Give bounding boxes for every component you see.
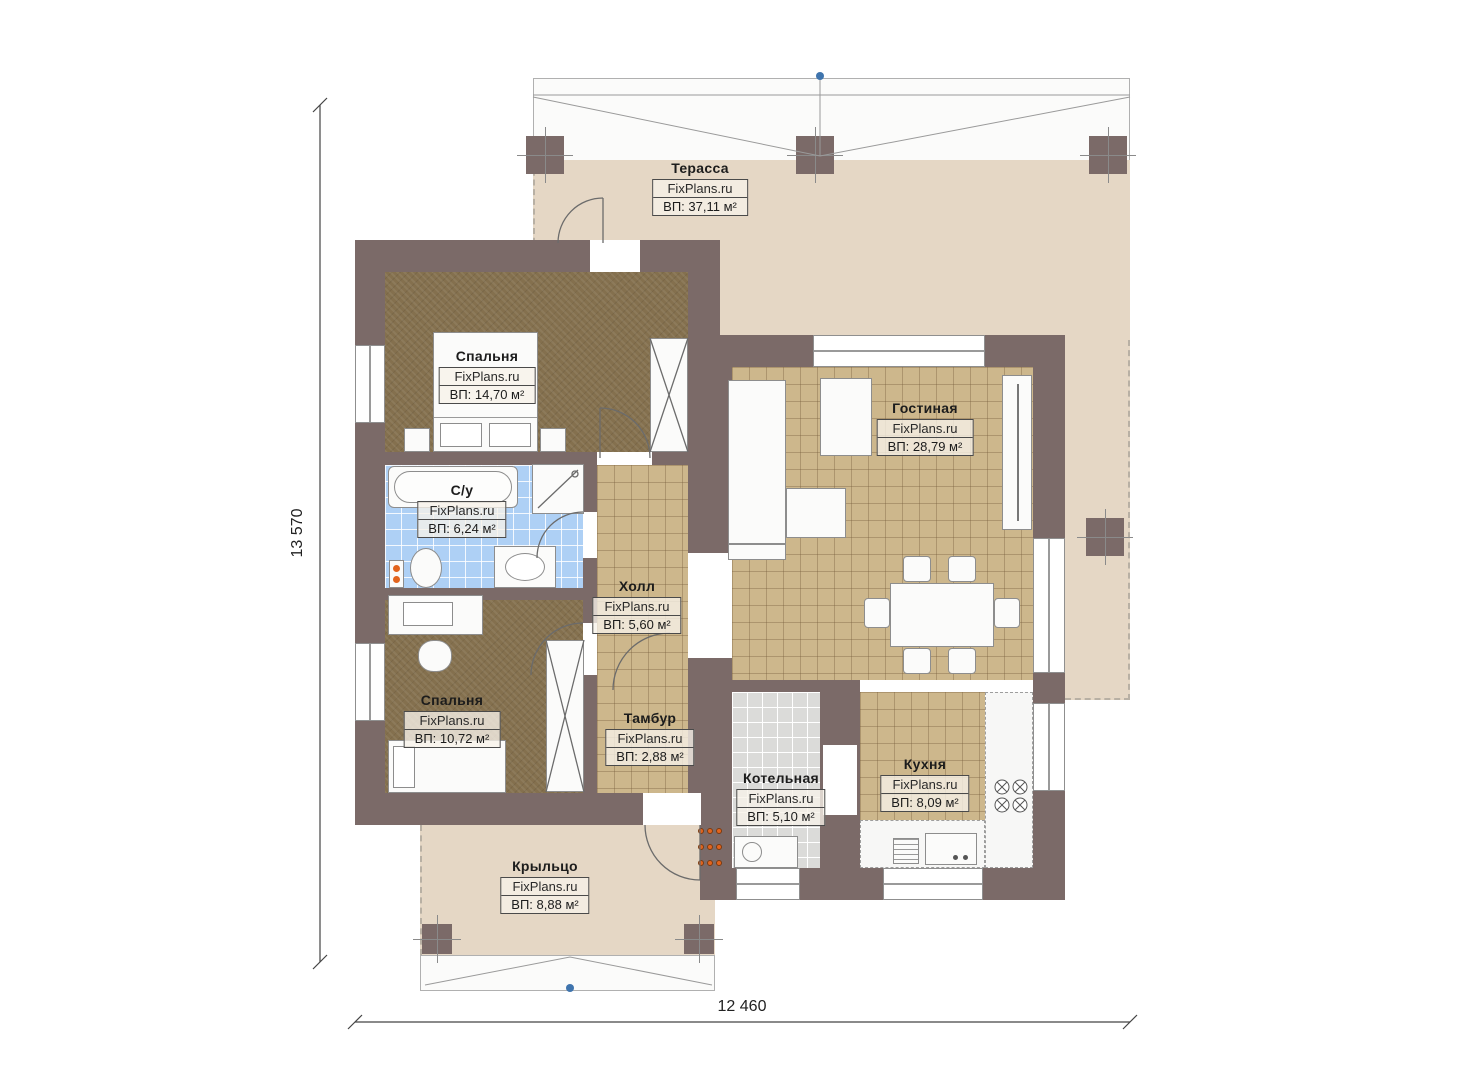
porch-roof-strip	[420, 955, 715, 991]
partition-wall	[652, 452, 688, 465]
room-label-bathroom: С/у FixPlans.ru ВП: 6,24 м²	[417, 482, 506, 538]
room-brand: FixPlans.ru	[440, 368, 535, 386]
room-area: ВП: 6,24 м²	[418, 520, 505, 537]
room-name: Спальня	[439, 348, 536, 364]
nightstand	[540, 428, 566, 452]
bathroom-door-opening	[583, 512, 597, 558]
room-brand: FixPlans.ru	[737, 790, 824, 808]
dining-chair	[994, 598, 1020, 628]
room-area: ВП: 5,10 м²	[737, 808, 824, 825]
room-name: Гостиная	[877, 400, 974, 416]
bedroom1-door-opening	[597, 452, 652, 465]
room-label-bedroom1: Спальня FixPlans.ru ВП: 14,70 м²	[439, 348, 536, 404]
kitchen-window	[883, 868, 983, 900]
terrace-post	[526, 136, 564, 174]
room-info-box: FixPlans.ru ВП: 14,70 м²	[439, 367, 536, 404]
dining-chair	[948, 556, 976, 582]
dining-chair	[948, 648, 976, 674]
desk	[388, 595, 483, 635]
room-brand: FixPlans.ru	[606, 730, 693, 748]
terrace-door-opening	[590, 240, 640, 272]
room-name: Терасса	[652, 160, 748, 176]
towel-radiator	[389, 560, 404, 588]
sink-drainer	[893, 838, 919, 864]
washing-machine	[734, 836, 798, 868]
boiler-window	[736, 868, 800, 900]
room-area: ВП: 2,88 м²	[606, 748, 693, 765]
room-info-box: FixPlans.ru ВП: 6,24 м²	[417, 501, 506, 538]
room-info-box: FixPlans.ru ВП: 10,72 м²	[404, 711, 501, 748]
floor-plan: Терасса FixPlans.ru ВП: 37,11 м² Спальня…	[0, 0, 1474, 1080]
dimension-height: 13 570	[289, 509, 307, 558]
shower	[532, 464, 584, 514]
porch-post	[684, 924, 714, 954]
room-brand: FixPlans.ru	[878, 420, 973, 438]
living-window	[813, 335, 985, 367]
toilet	[410, 548, 442, 588]
partition-wall	[732, 680, 832, 692]
room-label-living: Гостиная FixPlans.ru ВП: 28,79 м²	[877, 400, 974, 456]
dimension-width: 12 460	[718, 998, 767, 1016]
terrace-post	[1086, 518, 1124, 556]
heating-radiator	[698, 828, 722, 834]
room-area: ВП: 8,88 м²	[501, 896, 588, 913]
room-label-tambour: Тамбур FixPlans.ru ВП: 2,88 м²	[605, 710, 694, 766]
dining-chair	[903, 556, 931, 582]
room-area: ВП: 28,79 м²	[878, 438, 973, 455]
room-area: ВП: 37,11 м²	[653, 198, 747, 215]
heating-radiator	[698, 844, 722, 850]
room-brand: FixPlans.ru	[405, 712, 500, 730]
room-name: Котельная	[736, 770, 825, 786]
wardrobe	[650, 338, 688, 452]
room-label-kitchen: Кухня FixPlans.ru ВП: 8,09 м²	[880, 756, 969, 812]
heating-radiator	[698, 860, 722, 866]
sofa-chaise	[786, 488, 846, 538]
kitchen-living-opening	[860, 680, 1033, 692]
wall-segment	[355, 240, 715, 272]
room-name: Кухня	[880, 756, 969, 772]
room-name: Крыльцо	[500, 858, 589, 874]
desk-chair	[418, 640, 452, 672]
room-label-boiler: Котельная FixPlans.ru ВП: 5,10 м²	[736, 770, 825, 826]
nightstand	[404, 428, 430, 452]
room-brand: FixPlans.ru	[418, 502, 505, 520]
porch-post	[422, 924, 452, 954]
room-name: С/у	[417, 482, 506, 498]
dining-chair	[903, 648, 931, 674]
room-label-bedroom2: Спальня FixPlans.ru ВП: 10,72 м²	[404, 692, 501, 748]
sink-vanity	[494, 546, 556, 588]
room-info-box: FixPlans.ru ВП: 5,60 м²	[592, 597, 681, 634]
hall-living-opening	[688, 553, 732, 658]
terrace-post	[796, 136, 834, 174]
terrace-slider-door	[1033, 538, 1065, 673]
sofa-armrest	[728, 544, 786, 560]
terrace-post	[1089, 136, 1127, 174]
room-area: ВП: 14,70 м²	[440, 386, 535, 403]
kitchen-sink	[925, 833, 977, 865]
room-name: Спальня	[404, 692, 501, 708]
room-name: Холл	[592, 578, 681, 594]
room-brand: FixPlans.ru	[653, 180, 747, 198]
wall-segment	[355, 240, 385, 825]
room-brand: FixPlans.ru	[881, 776, 968, 794]
sofa-corner	[728, 380, 786, 544]
room-area: ВП: 8,09 м²	[881, 794, 968, 811]
living-side-window	[1033, 703, 1065, 791]
wardrobe	[546, 640, 584, 792]
room-info-box: FixPlans.ru ВП: 8,88 м²	[500, 877, 589, 914]
room-info-box: FixPlans.ru ВП: 37,11 м²	[652, 179, 748, 216]
room-label-hall: Холл FixPlans.ru ВП: 5,60 м²	[592, 578, 681, 634]
dining-chair	[864, 598, 890, 628]
room-info-box: FixPlans.ru ВП: 2,88 м²	[605, 729, 694, 766]
room-brand: FixPlans.ru	[593, 598, 680, 616]
room-info-box: FixPlans.ru ВП: 5,10 м²	[736, 789, 825, 826]
room-area: ВП: 10,72 м²	[405, 730, 500, 747]
kitchen-counter-right	[985, 692, 1033, 868]
coffee-table	[820, 378, 872, 456]
dining-table	[890, 583, 994, 647]
front-door-opening	[643, 793, 701, 825]
tv-cabinet	[1002, 375, 1032, 530]
room-label-porch: Крыльцо FixPlans.ru ВП: 8,88 м²	[500, 858, 589, 914]
boiler-door-opening	[823, 745, 857, 815]
room-label-terrace: Терасса FixPlans.ru ВП: 37,11 м²	[652, 160, 748, 216]
bedroom1-window	[355, 345, 385, 423]
room-brand: FixPlans.ru	[501, 878, 588, 896]
room-name: Тамбур	[605, 710, 694, 726]
room-info-box: FixPlans.ru ВП: 28,79 м²	[877, 419, 974, 456]
room-info-box: FixPlans.ru ВП: 8,09 м²	[880, 775, 969, 812]
room-area: ВП: 5,60 м²	[593, 616, 680, 633]
bedroom2-window	[355, 643, 385, 721]
